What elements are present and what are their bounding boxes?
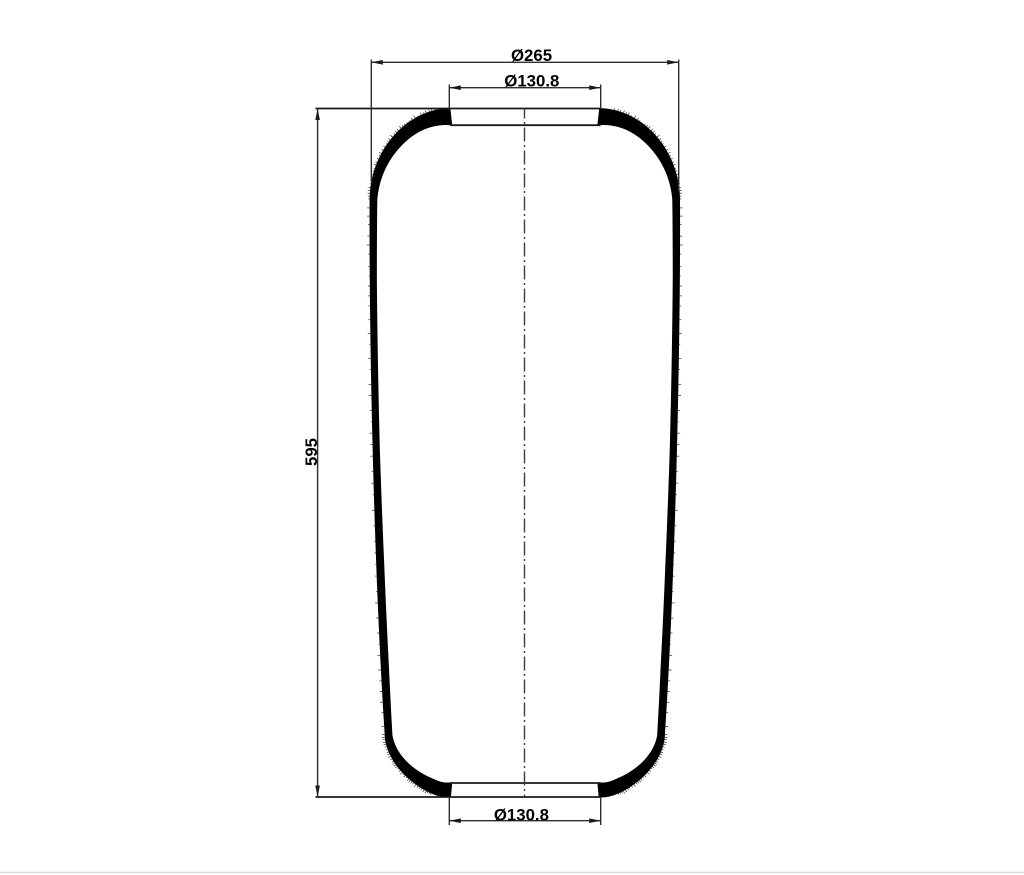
svg-text:Ø130.8: Ø130.8 <box>494 805 549 824</box>
svg-text:Ø265: Ø265 <box>511 46 552 65</box>
svg-text:595: 595 <box>302 438 321 466</box>
svg-text:Ø130.8: Ø130.8 <box>504 72 559 91</box>
